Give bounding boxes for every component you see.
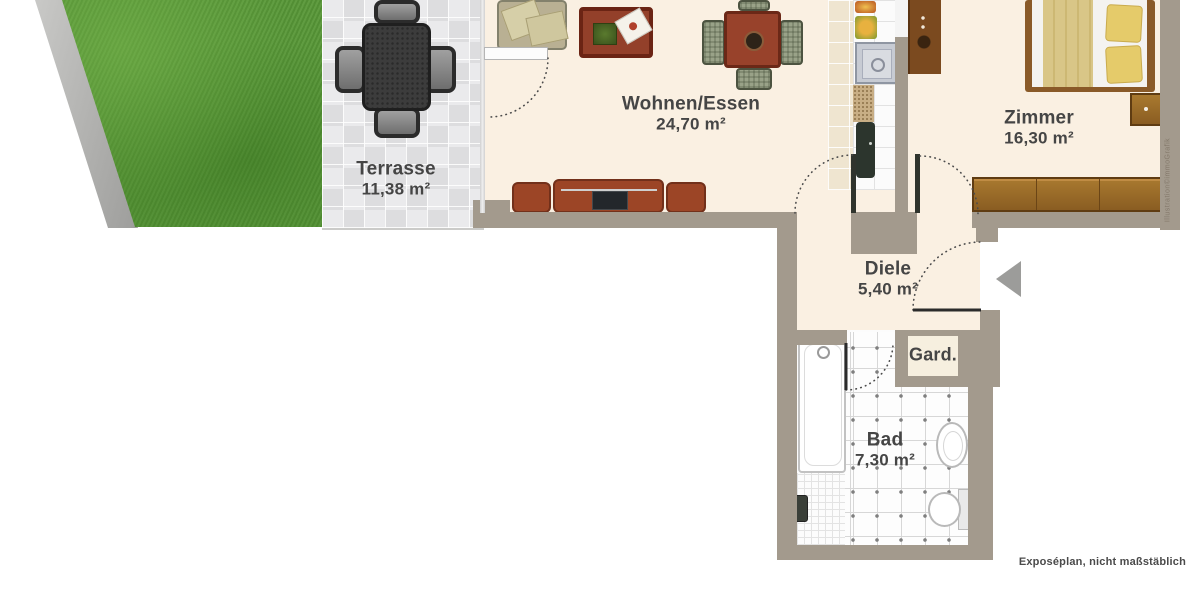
room-label-wohnen-essen: Wohnen/Essen 24,70 m²: [622, 94, 760, 135]
room-name: Gard.: [909, 345, 957, 366]
door-swing-overlay: [0, 0, 1200, 600]
room-area: 16,30 m²: [1004, 129, 1074, 149]
room-label-diele: Diele 5,40 m²: [858, 259, 918, 300]
entry-door-swing-arc: [913, 242, 981, 310]
room-label-terrasse: Terrasse 11,38 m²: [356, 159, 435, 200]
bedroom-door-swing-arc: [920, 156, 978, 214]
terrace-door-swing-arc: [489, 58, 548, 117]
room-name: Terrasse: [356, 159, 435, 180]
room-area: 7,30 m²: [855, 451, 915, 471]
room-area: 11,38 m²: [356, 180, 435, 200]
room-name: Bad: [855, 430, 915, 451]
room-name: Zimmer: [1004, 108, 1074, 129]
room-label-garderobe: Gard.: [909, 345, 957, 366]
entrance-arrow-icon: [996, 261, 1021, 297]
footer-disclaimer: Exposéplan, nicht maßstäblich: [1019, 556, 1186, 568]
floorplan: Terrasse 11,38 m² Wohnen/Essen 24,70 m² …: [0, 0, 1200, 600]
bath-door-swing-arc: [846, 343, 893, 390]
room-area: 24,70 m²: [622, 115, 760, 135]
room-name: Diele: [858, 259, 918, 280]
hall-door-swing-arc: [795, 155, 853, 213]
room-label-bad: Bad 7,30 m²: [855, 430, 915, 471]
room-label-zimmer: Zimmer 16,30 m²: [1004, 108, 1074, 149]
room-name: Wohnen/Essen: [622, 94, 760, 115]
room-area: 5,40 m²: [858, 280, 918, 300]
illustrator-watermark: Illustration©immoGrafik: [1165, 138, 1172, 222]
